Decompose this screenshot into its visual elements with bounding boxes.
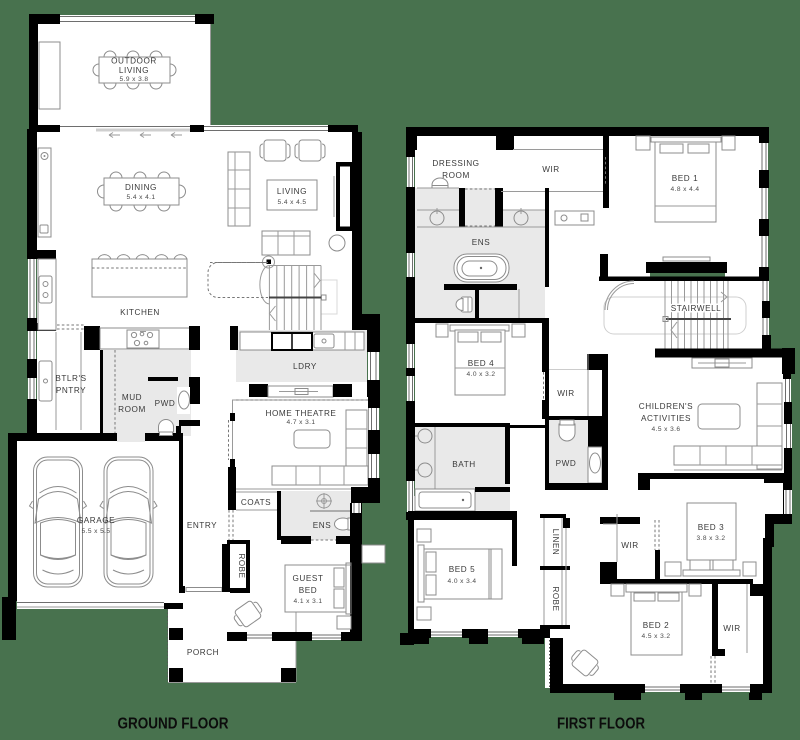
svg-text:PWD: PWD (155, 399, 176, 408)
svg-text:LIVING: LIVING (277, 187, 307, 196)
svg-text:WIR: WIR (723, 624, 741, 633)
svg-text:5.4 x 4.1: 5.4 x 4.1 (127, 194, 156, 201)
svg-text:BED 4: BED 4 (468, 359, 494, 368)
svg-text:LDRY: LDRY (293, 362, 317, 371)
svg-text:CHILDREN'S: CHILDREN'S (639, 402, 693, 411)
svg-text:ROOM: ROOM (442, 171, 470, 180)
svg-text:5.5 x 5.5: 5.5 x 5.5 (82, 528, 111, 535)
svg-text:KITCHEN: KITCHEN (120, 308, 160, 317)
svg-text:WIR: WIR (542, 165, 560, 174)
svg-text:BED 3: BED 3 (698, 523, 724, 532)
svg-text:OUTDOOR: OUTDOOR (111, 57, 157, 66)
svg-text:WIR: WIR (621, 541, 639, 550)
svg-text:GROUND FLOOR: GROUND FLOOR (118, 716, 229, 733)
svg-text:BED: BED (299, 586, 318, 595)
svg-text:PNTRY: PNTRY (56, 386, 86, 395)
svg-text:COATS: COATS (241, 498, 271, 507)
svg-text:BATH: BATH (452, 460, 475, 469)
svg-text:FIRST FLOOR: FIRST FLOOR (557, 716, 645, 733)
svg-text:LIVING: LIVING (119, 66, 149, 75)
svg-text:4.0 x 3.2: 4.0 x 3.2 (467, 371, 496, 378)
svg-text:ACTIVITIES: ACTIVITIES (641, 414, 691, 423)
svg-text:4.7 x 3.1: 4.7 x 3.1 (287, 419, 316, 426)
svg-text:DINING: DINING (125, 183, 157, 192)
svg-text:4.5 x 3.6: 4.5 x 3.6 (652, 426, 681, 433)
svg-text:GARAGE: GARAGE (77, 516, 115, 525)
svg-text:HOME THEATRE: HOME THEATRE (266, 409, 337, 418)
svg-text:GUEST: GUEST (293, 574, 324, 583)
svg-text:4.8 x 4.4: 4.8 x 4.4 (671, 186, 700, 193)
svg-text:ROBE: ROBE (237, 553, 246, 578)
svg-text:5.4 x 4.5: 5.4 x 4.5 (278, 199, 307, 206)
svg-text:4.0 x 3.4: 4.0 x 3.4 (448, 578, 477, 585)
svg-text:ENTRY: ENTRY (187, 521, 217, 530)
svg-text:DRESSING: DRESSING (432, 159, 479, 168)
svg-text:ENS: ENS (472, 238, 491, 247)
svg-text:LINEN: LINEN (551, 529, 560, 556)
svg-text:WIR: WIR (557, 389, 575, 398)
svg-text:PORCH: PORCH (187, 648, 219, 657)
svg-text:MUD: MUD (122, 393, 142, 402)
svg-text:ROOM: ROOM (118, 405, 146, 414)
svg-text:BTLR'S: BTLR'S (55, 374, 86, 383)
svg-text:5.9 x 3.8: 5.9 x 3.8 (120, 76, 149, 83)
svg-text:4.1 x 3.1: 4.1 x 3.1 (294, 598, 323, 605)
svg-text:STAIRWELL: STAIRWELL (671, 304, 722, 313)
svg-text:BED 2: BED 2 (643, 621, 669, 630)
svg-text:ENS: ENS (313, 521, 332, 530)
svg-text:PWD: PWD (556, 459, 577, 468)
svg-text:ROBE: ROBE (551, 586, 560, 611)
svg-text:4.5 x 3.2: 4.5 x 3.2 (642, 633, 671, 640)
svg-text:BED 1: BED 1 (672, 174, 698, 183)
svg-text:3.8 x 3.2: 3.8 x 3.2 (697, 535, 726, 542)
svg-text:BED 5: BED 5 (449, 565, 475, 574)
